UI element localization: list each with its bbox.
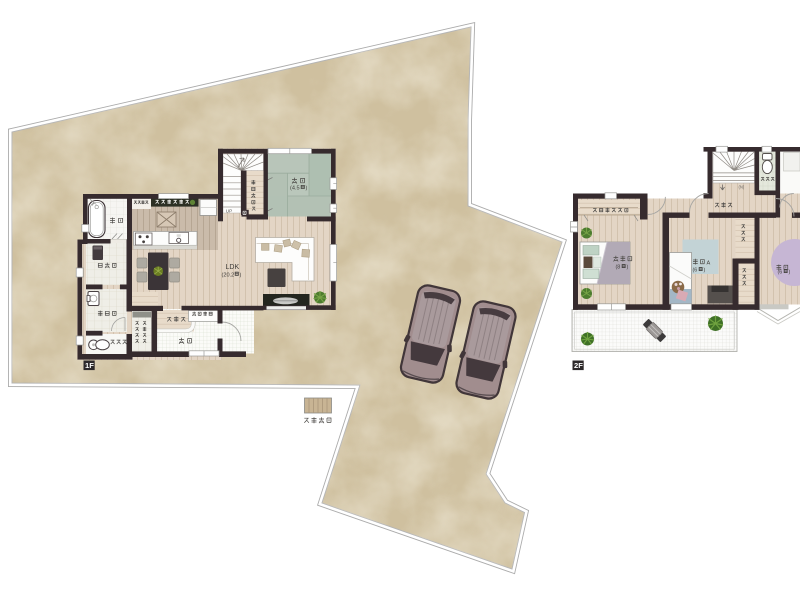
svg-text:(N): (N): [739, 185, 745, 190]
svg-text:(8: (8: [616, 265, 621, 271]
svg-text:): ): [789, 270, 791, 276]
svg-text:2F: 2F: [574, 361, 583, 370]
svg-text:): ): [240, 272, 242, 278]
svg-text:): ): [627, 265, 629, 271]
svg-text:(4.5: (4.5: [290, 186, 300, 192]
svg-text:1F: 1F: [85, 361, 94, 370]
svg-text:): ): [704, 268, 706, 274]
svg-text:(20.2: (20.2: [222, 272, 235, 278]
svg-text:(6: (6: [693, 268, 698, 274]
svg-text:A: A: [707, 261, 711, 267]
svg-text:(6: (6: [778, 270, 783, 276]
svg-text:LDK: LDK: [226, 264, 240, 271]
svg-text:): ): [306, 186, 308, 192]
svg-text:UP: UP: [226, 209, 232, 214]
